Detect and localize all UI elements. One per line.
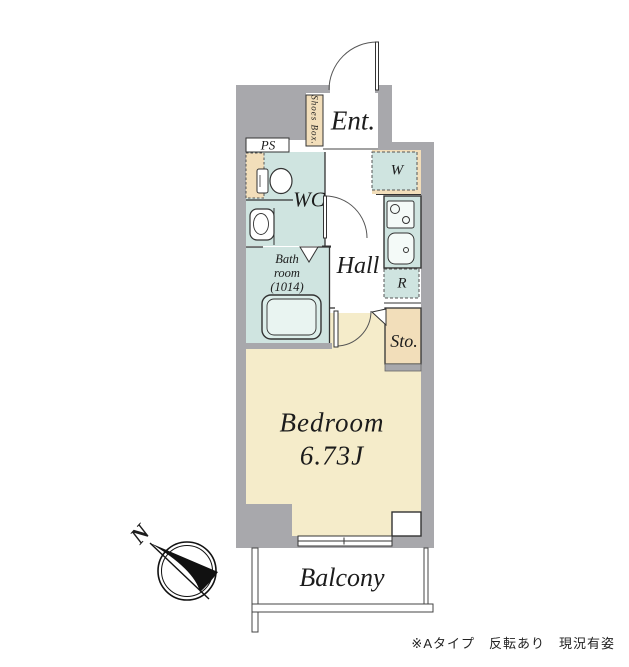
label-bedroom: Bedroom <box>280 410 385 437</box>
wall-entrance-right <box>378 85 392 150</box>
label-balcony: Balcony <box>299 565 384 591</box>
label-washer: W <box>391 164 404 179</box>
wall-top-left-block <box>236 85 306 140</box>
stove-icon <box>387 201 414 228</box>
label-hall: Hall <box>337 254 380 278</box>
pillar <box>392 512 421 536</box>
entrance-door-arc <box>329 42 377 90</box>
label-bathroom: Bath room (1014) <box>270 252 303 294</box>
kitchen-sink-icon <box>388 233 414 264</box>
label-bedroom-size: 6.73J <box>300 443 364 470</box>
wall-bathroom-bottom <box>236 343 332 349</box>
compass-icon <box>150 542 218 600</box>
balcony-rail-bottom <box>252 604 433 612</box>
wall-bottom-left-block-top <box>236 504 292 548</box>
wc-door-arc <box>325 196 367 238</box>
label-wc: WC <box>293 190 325 211</box>
label-storage: Sto. <box>390 332 418 350</box>
label-refrigerator: R <box>397 277 406 292</box>
bathtub-inner <box>267 299 316 335</box>
balcony-rail-right <box>424 548 428 604</box>
balcony-rail-left <box>252 548 258 632</box>
toilet-tank-icon <box>257 169 268 193</box>
label-shoes-box: Shoes Box. <box>310 95 319 145</box>
label-bathroom-line2: room <box>274 266 300 280</box>
toilet-bowl-icon <box>270 169 292 194</box>
storage-wall-bar <box>385 364 421 371</box>
bedroom-door-leaf <box>334 311 338 347</box>
entrance-door-leaf <box>376 42 379 90</box>
wall-top <box>236 85 330 93</box>
label-entrance: Ent. <box>331 108 375 135</box>
label-ps: PS <box>261 139 275 152</box>
wall-left <box>236 85 246 548</box>
footnote: ※Aタイプ 反転あり 現況有姿 <box>350 633 615 652</box>
floor-plan: Ent. Shoes Box. PS WC Bath room (1014) H… <box>0 0 629 667</box>
label-bathroom-line3: (1014) <box>270 280 303 294</box>
label-bathroom-line1: Bath <box>275 252 299 266</box>
wall-right <box>421 148 434 548</box>
